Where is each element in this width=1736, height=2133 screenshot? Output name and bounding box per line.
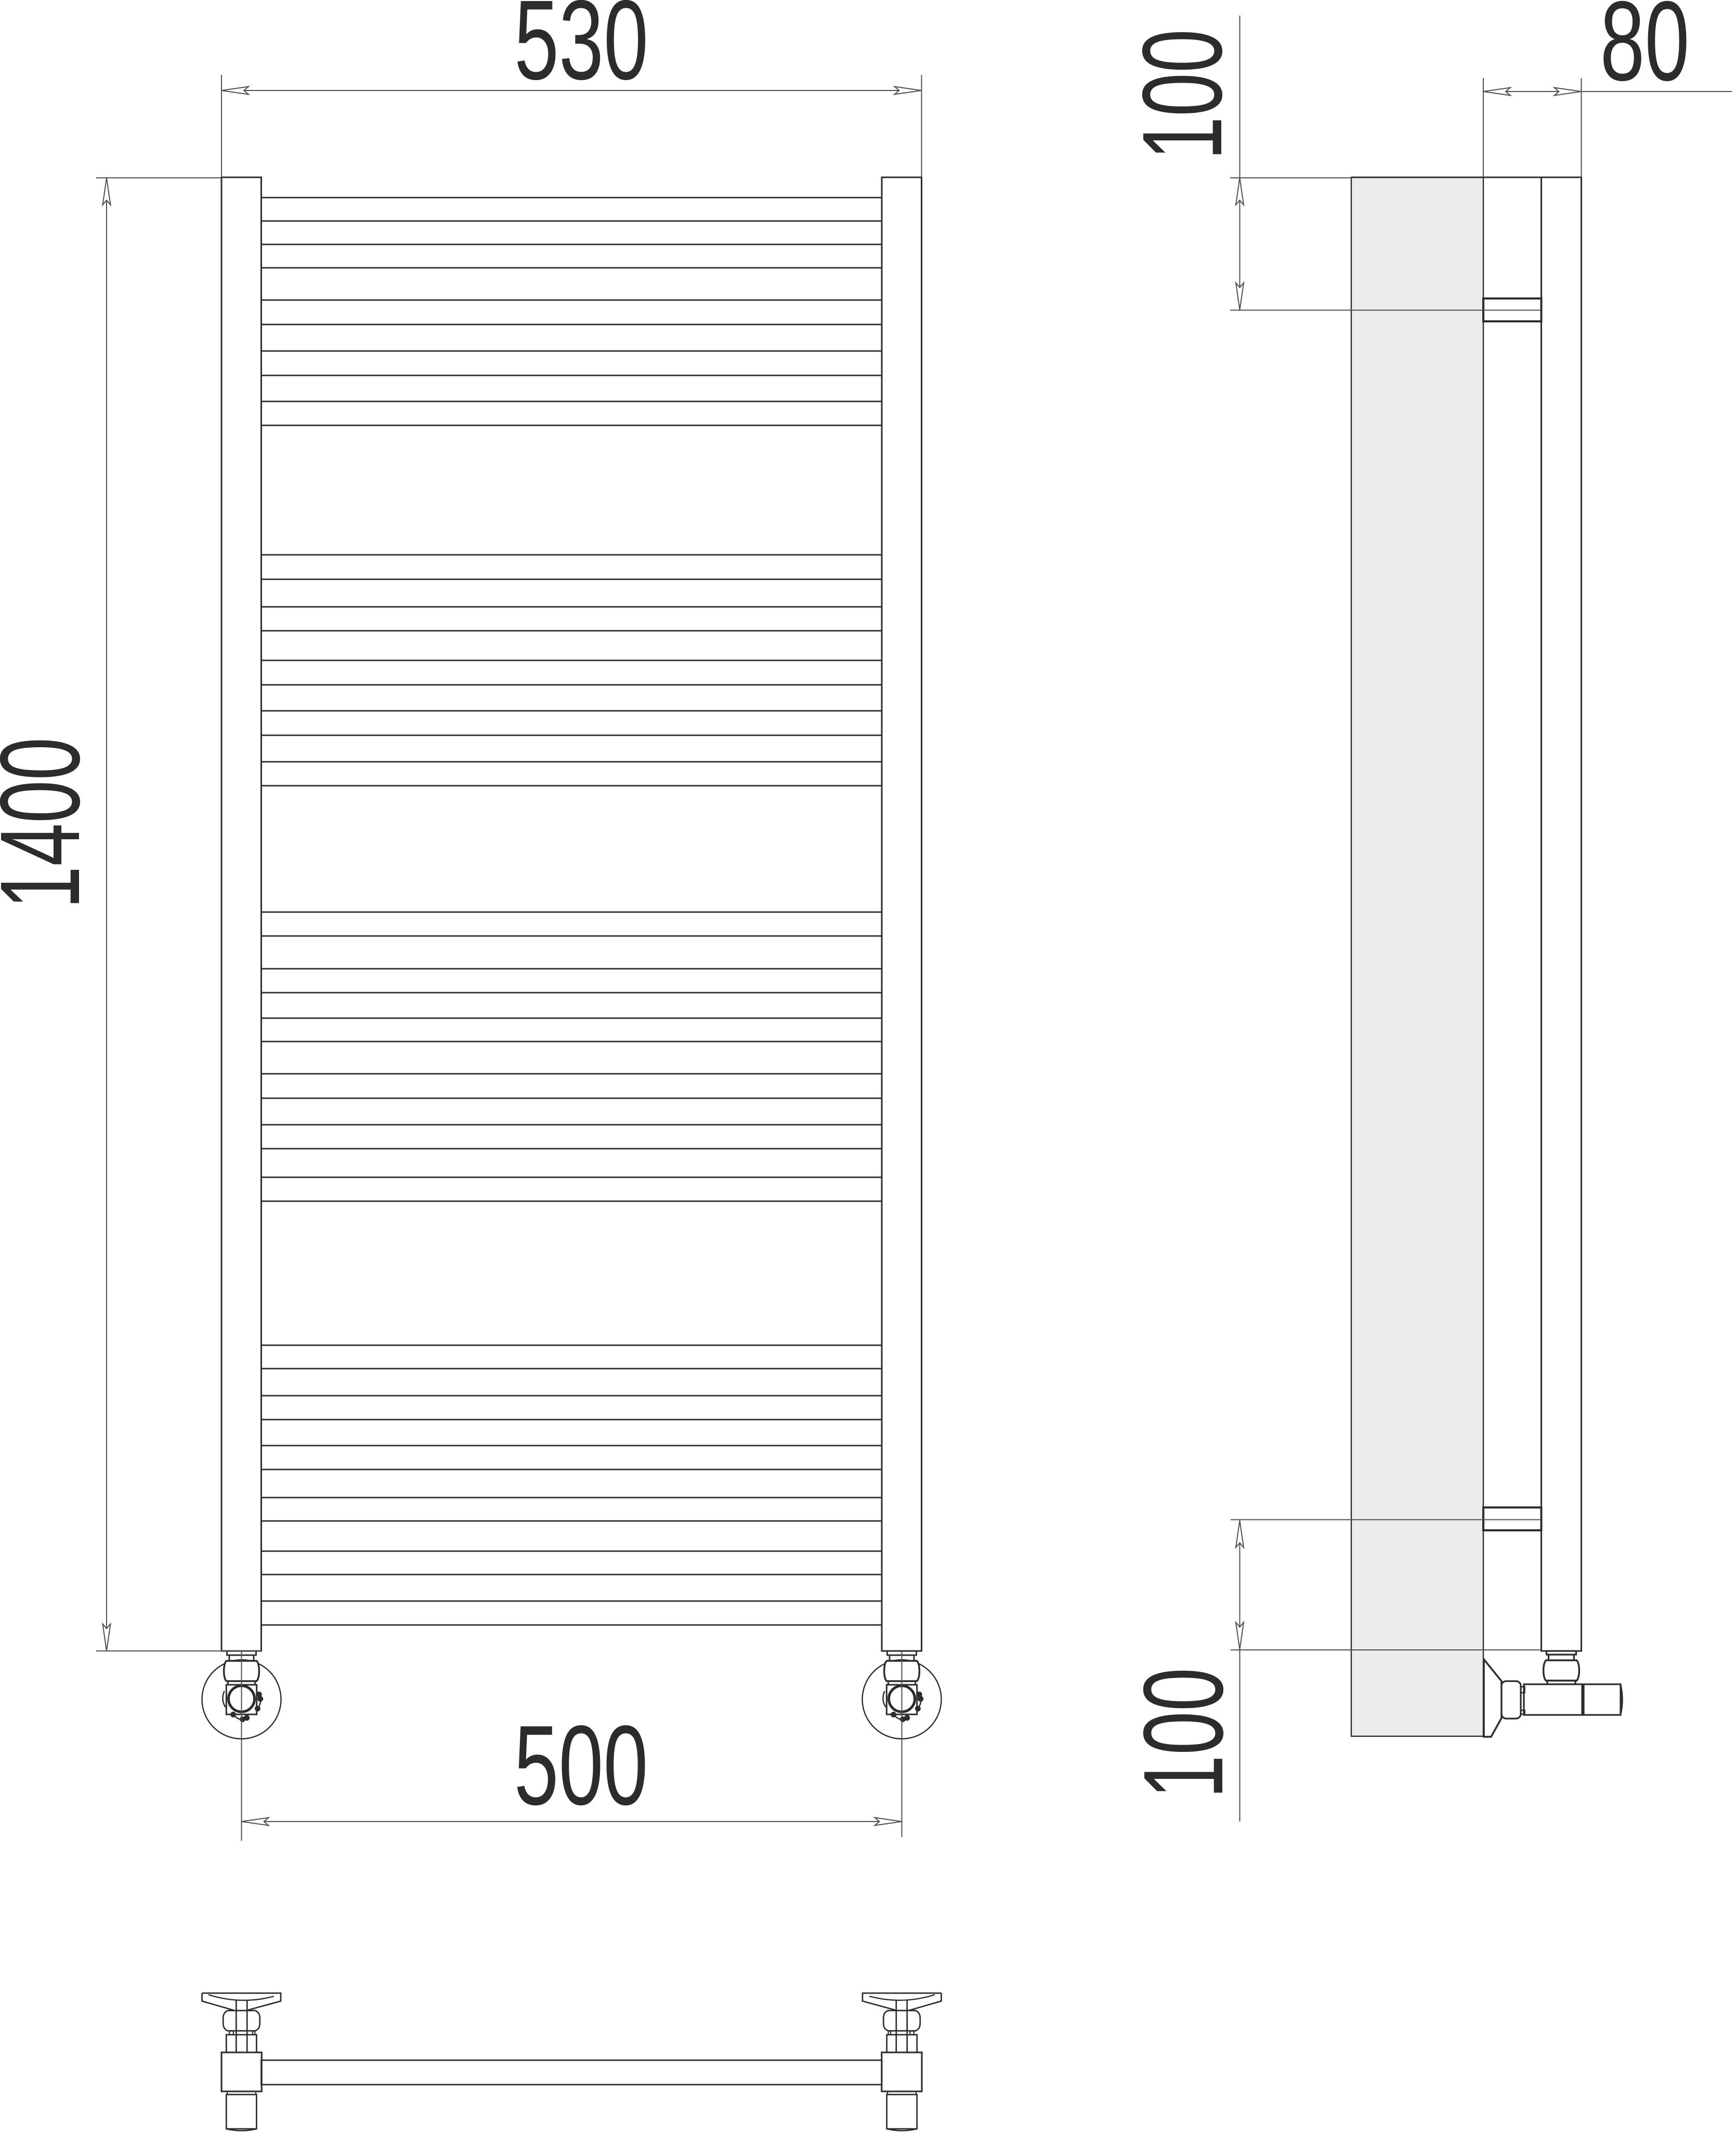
svg-text:1400: 1400 xyxy=(0,737,103,909)
svg-text:80: 80 xyxy=(1600,0,1690,105)
svg-text:100: 100 xyxy=(1120,1668,1247,1799)
svg-text:530: 530 xyxy=(514,0,648,103)
svg-text:100: 100 xyxy=(1119,29,1246,160)
svg-text:500: 500 xyxy=(514,1702,648,1829)
